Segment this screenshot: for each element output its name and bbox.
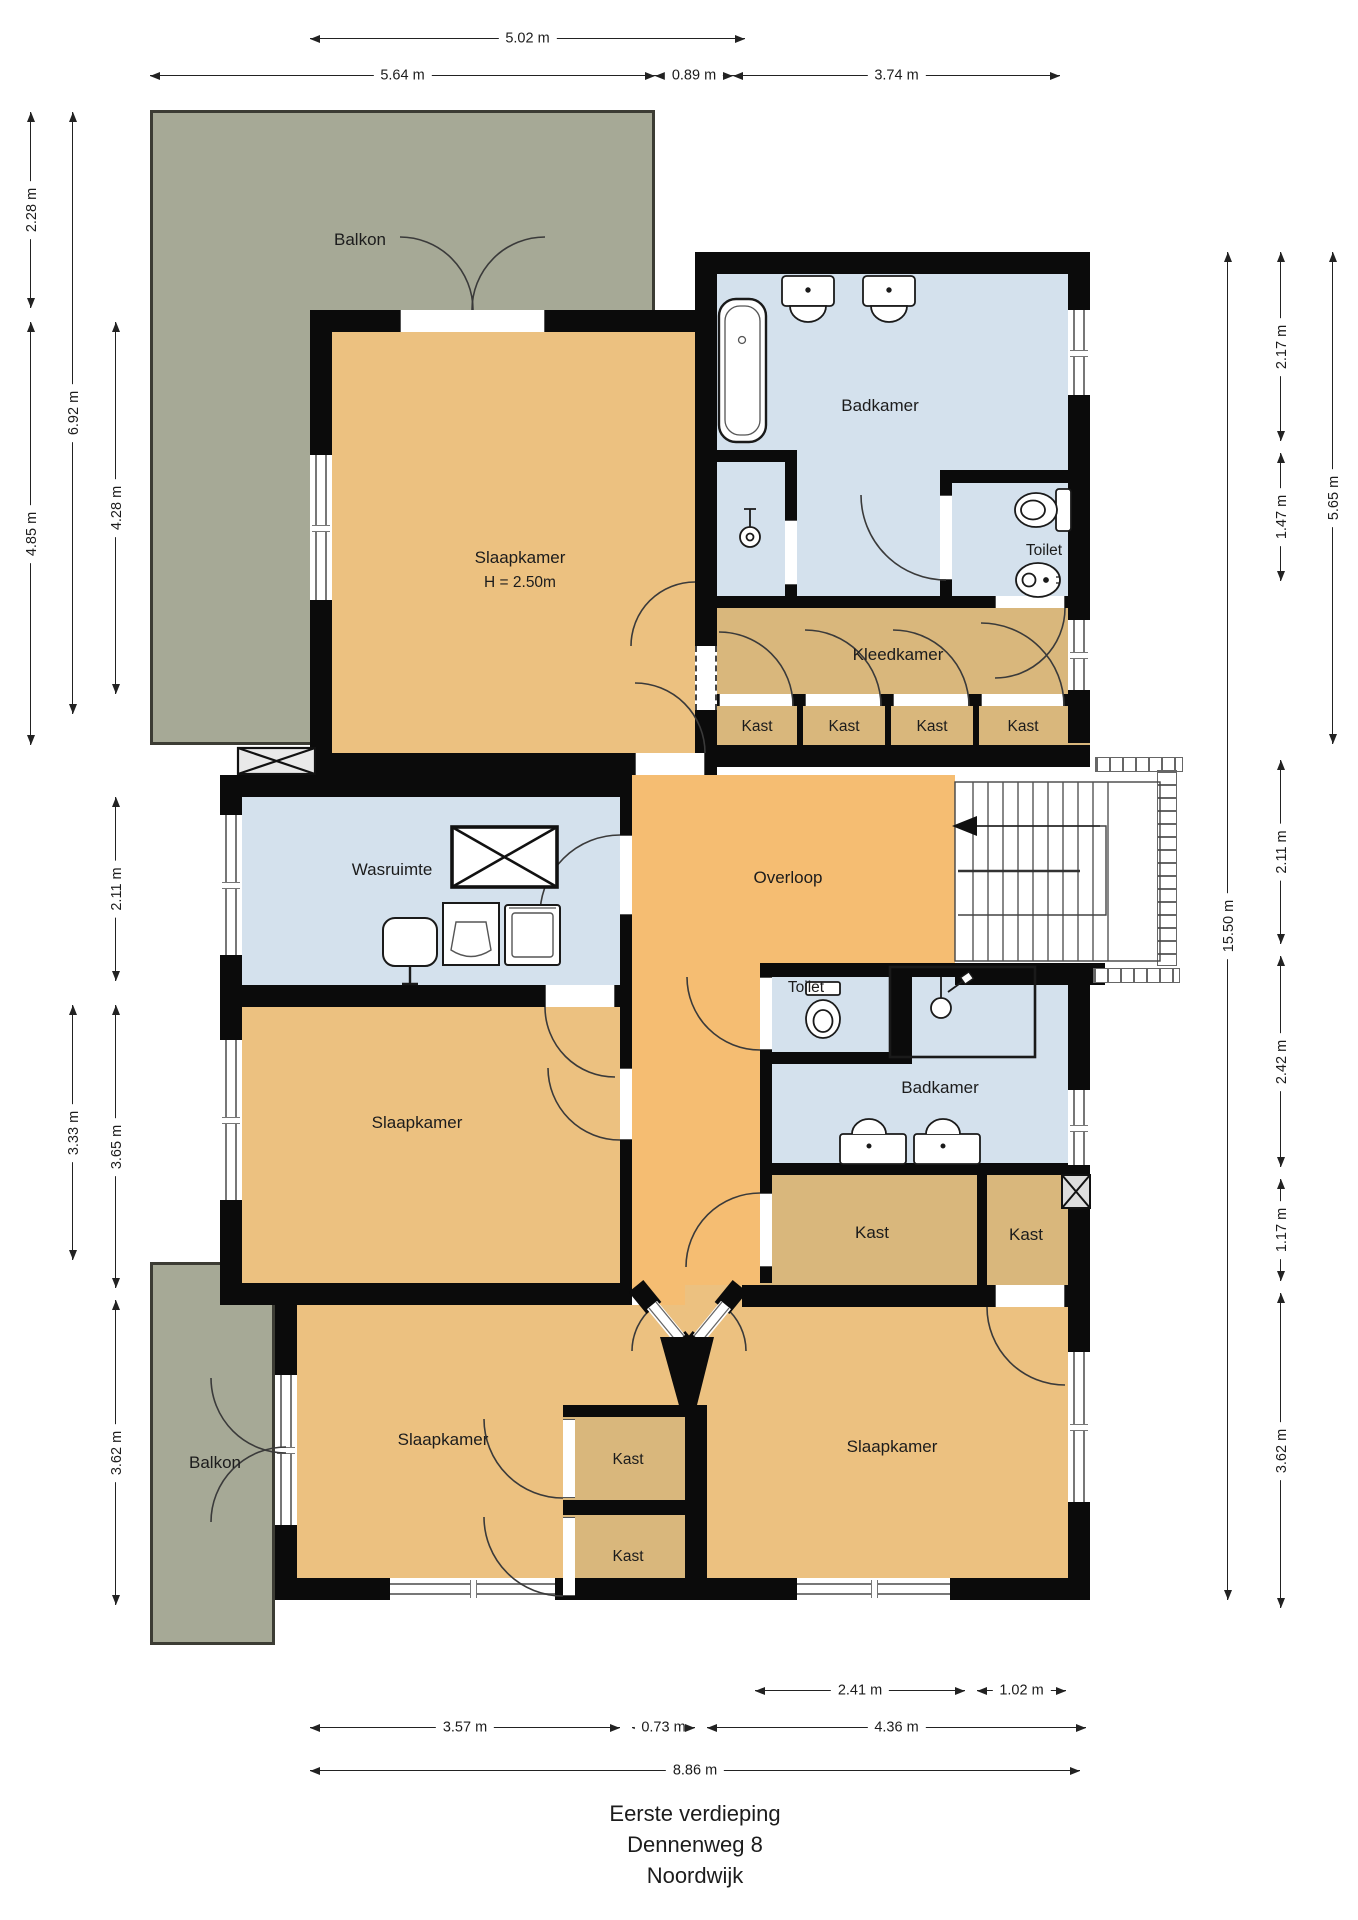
dim-top-502: 5.02 m [310, 38, 745, 39]
dim-left-228: 2.28 m [30, 112, 31, 308]
dim-top-374: 3.74 m [733, 75, 1060, 76]
label-kast-3: Kast [916, 718, 947, 736]
label-slaapkamer-bottom-left: Slaapkamer [398, 1430, 489, 1450]
wall [973, 706, 979, 745]
dim-right-147: 1.47 m [1280, 453, 1281, 581]
label-balkon-bottom: Balkon [189, 1453, 241, 1473]
dim-bottom-102: 1.02 m [977, 1690, 1066, 1691]
door-gap [785, 520, 797, 585]
dim-left-692: 6.92 m [72, 112, 73, 714]
label-slaapkamer-main: Slaapkamer [475, 548, 566, 568]
window-icon [390, 1578, 555, 1600]
dim-left-485: 4.85 m [30, 322, 31, 745]
window-icon [1068, 620, 1090, 690]
window-icon [220, 815, 242, 955]
dim-right-242: 2.42 m [1280, 956, 1281, 1167]
label-slaapkamer-mid: Slaapkamer [372, 1113, 463, 1133]
door-gap [760, 977, 772, 1050]
door-gap [620, 1068, 632, 1140]
window-icon [797, 1578, 950, 1600]
window-icon [1068, 1090, 1090, 1165]
door-gap [995, 1285, 1065, 1307]
label-toilet-top: Toilet [1026, 542, 1062, 560]
wall [695, 252, 1090, 274]
label-kast-4: Kast [1007, 718, 1038, 736]
wall [772, 1052, 890, 1064]
label-kast-1: Kast [741, 718, 772, 736]
plan-title-floor: Eerste verdieping [609, 1801, 780, 1827]
door-gap [635, 753, 705, 775]
dim-top-564: 5.64 m [150, 75, 655, 76]
dim-right-211: 2.11 m [1280, 760, 1281, 944]
stair-railing-right [1157, 770, 1177, 966]
label-kast-mid-small: Kast [1009, 1225, 1043, 1245]
dim-left-211: 2.11 m [115, 797, 116, 981]
dim-left-362: 3.62 m [115, 1300, 116, 1605]
closet-door-gap [719, 694, 793, 706]
wall [685, 1405, 707, 1600]
label-kleedkamer: Kleedkamer [853, 645, 944, 665]
wall [890, 977, 912, 1064]
door-gap [545, 985, 615, 1007]
label-toilet-mid: Toilet [788, 979, 824, 997]
dim-right-117: 1.17 m [1280, 1179, 1281, 1281]
wall [797, 706, 803, 745]
door-gap [620, 835, 632, 915]
dim-top-089: 0.89 m [655, 75, 733, 76]
label-badkamer-top: Badkamer [841, 396, 918, 416]
window-icon [1068, 1352, 1090, 1502]
wall [220, 775, 632, 797]
dim-bottom-241: 2.41 m [755, 1690, 965, 1691]
label-overloop: Overloop [754, 868, 823, 888]
label-balkon-top: Balkon [334, 230, 386, 250]
open-passage-dashed [695, 646, 717, 710]
dim-bottom-073: 0.73 m [632, 1727, 695, 1728]
wall [977, 1163, 987, 1285]
label-kast-stack2: Kast [612, 1548, 643, 1566]
dim-bottom-886: 8.86 m [310, 1770, 1080, 1771]
label-kast-2: Kast [828, 718, 859, 736]
label-wasruimte: Wasruimte [352, 860, 433, 880]
stairs-icon [955, 782, 1160, 961]
room-kleedkamer-kastrow [695, 596, 1090, 767]
floorplan-canvas: Balkon Slaapkamer H = 2.50m Badkamer Toi… [0, 0, 1358, 1920]
stair-direction-arrow-icon [952, 816, 1100, 836]
wall [563, 1500, 685, 1515]
plan-title-street: Dennenweg 8 [627, 1832, 763, 1858]
room-slaapkamer-main [310, 310, 717, 775]
dim-bottom-436: 4.36 m [707, 1727, 1086, 1728]
window-icon [310, 455, 332, 600]
dim-right-217: 2.17 m [1280, 252, 1281, 441]
closet-door-gap [563, 1419, 575, 1498]
wall [760, 1163, 1090, 1175]
stair-railing-bottom [1093, 968, 1180, 983]
label-slaapkamer-main-height: H = 2.50m [484, 574, 556, 592]
window-icon [1068, 310, 1090, 395]
dim-left-365: 3.65 m [115, 1005, 116, 1288]
balcony-door-gap [400, 310, 545, 332]
dim-right-565: 5.65 m [1332, 252, 1333, 744]
door-gap [995, 596, 1065, 608]
wall [695, 745, 1090, 767]
label-slaapkamer-bottom-right: Slaapkamer [847, 1437, 938, 1457]
dim-left-333: 3.33 m [72, 1005, 73, 1260]
label-badkamer-mid: Badkamer [901, 1078, 978, 1098]
closet-door-gap [563, 1517, 575, 1596]
door-gap [760, 1193, 772, 1267]
balcony-french-door [275, 1375, 297, 1525]
plan-title-city: Noordwijk [647, 1863, 744, 1889]
dim-right-1550: 15.50 m [1227, 252, 1228, 1600]
room-slaapkamer-mid [220, 985, 632, 1305]
dim-left-428: 4.28 m [115, 322, 116, 694]
label-kast-mid-big: Kast [855, 1223, 889, 1243]
window-icon [220, 1040, 242, 1200]
room-wasruimte [220, 775, 632, 1007]
label-kast-stack1: Kast [612, 1451, 643, 1469]
door-gap [940, 495, 952, 580]
wall [940, 470, 1090, 483]
wall [220, 1283, 632, 1305]
wall [717, 450, 797, 462]
dim-bottom-357: 3.57 m [310, 1727, 620, 1728]
closet-door-gap [981, 694, 1064, 706]
dim-right-362: 3.62 m [1280, 1293, 1281, 1608]
closet-door-gap [805, 694, 881, 706]
closet-door-gap [893, 694, 969, 706]
wall [885, 706, 891, 745]
